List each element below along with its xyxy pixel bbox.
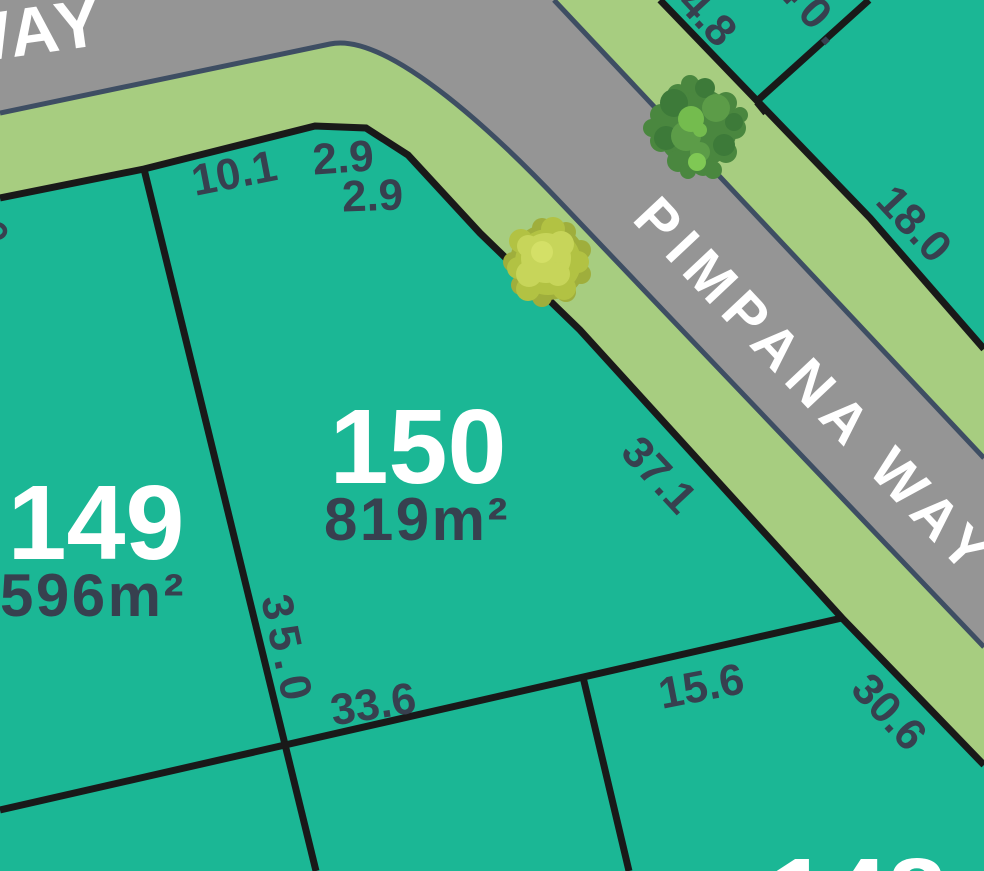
- svg-text:148: 148: [770, 837, 947, 871]
- svg-text:596m²: 596m²: [0, 562, 186, 629]
- svg-text:2.9: 2.9: [341, 170, 404, 221]
- svg-text:819m²: 819m²: [324, 486, 510, 553]
